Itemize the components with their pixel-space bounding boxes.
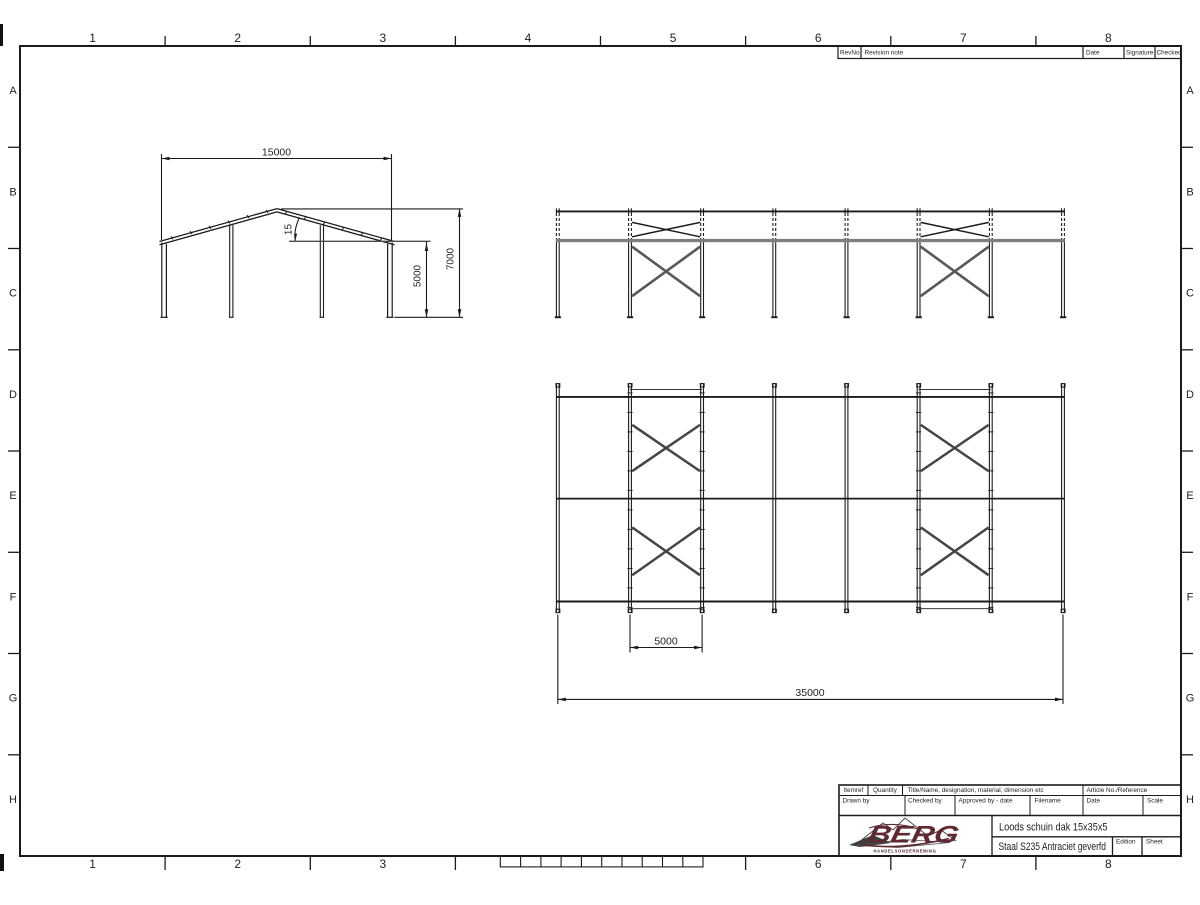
svg-text:Date: Date [1086, 50, 1100, 57]
svg-text:Scale: Scale [1147, 798, 1163, 805]
svg-text:A: A [1186, 85, 1194, 97]
svg-text:Quantity: Quantity [873, 787, 898, 794]
svg-text:Signature: Signature [1126, 50, 1154, 57]
svg-text:8: 8 [1105, 857, 1112, 871]
svg-text:Filename: Filename [1035, 798, 1062, 805]
svg-text:Drawn by: Drawn by [843, 798, 871, 805]
svg-text:D: D [9, 389, 17, 401]
svg-text:RevNo: RevNo [840, 50, 860, 57]
svg-text:2: 2 [234, 857, 241, 871]
svg-text:7000: 7000 [445, 247, 456, 270]
svg-text:Edition: Edition [1116, 839, 1136, 846]
svg-text:Revision note: Revision note [865, 50, 904, 57]
svg-text:Checked by: Checked by [908, 798, 943, 805]
svg-text:F: F [1187, 591, 1194, 603]
svg-text:Loods schuin dak 15x35x5: Loods schuin dak 15x35x5 [999, 822, 1108, 834]
svg-text:5: 5 [670, 31, 677, 45]
svg-text:3: 3 [379, 857, 386, 871]
svg-text:Itemref: Itemref [844, 787, 864, 794]
svg-text:7: 7 [960, 31, 967, 45]
svg-text:G: G [1186, 693, 1195, 705]
svg-text:C: C [1186, 288, 1194, 300]
svg-text:6: 6 [815, 31, 822, 45]
svg-text:7: 7 [960, 857, 967, 871]
svg-text:H: H [9, 794, 17, 806]
svg-text:15000: 15000 [262, 147, 291, 159]
svg-text:Sheet: Sheet [1146, 839, 1163, 846]
svg-text:Checked: Checked [1157, 50, 1183, 57]
svg-text:C: C [9, 288, 17, 300]
svg-text:H: H [1186, 794, 1194, 806]
svg-text:8: 8 [1105, 31, 1112, 45]
svg-text:B: B [1186, 186, 1193, 198]
svg-text:4: 4 [525, 31, 532, 45]
svg-text:Date: Date [1087, 798, 1101, 805]
svg-text:D: D [1186, 389, 1194, 401]
svg-text:1: 1 [89, 31, 96, 45]
svg-text:5000: 5000 [654, 636, 678, 648]
svg-text:Title/Name, designation, mater: Title/Name, designation, material, dimen… [908, 787, 1045, 794]
svg-text:HANDELSONDERNEMING: HANDELSONDERNEMING [874, 849, 937, 854]
svg-text:G: G [9, 693, 18, 705]
svg-text:Staal S235 Antraciet geverfd: Staal S235 Antraciet geverfd [999, 841, 1107, 853]
svg-text:E: E [9, 490, 16, 502]
svg-text:F: F [10, 591, 17, 603]
svg-text:2: 2 [234, 31, 241, 45]
svg-text:3: 3 [379, 31, 386, 45]
svg-text:15: 15 [284, 224, 295, 236]
svg-text:6: 6 [815, 857, 822, 871]
svg-text:1: 1 [89, 857, 96, 871]
svg-text:Article No./Reference: Article No./Reference [1087, 787, 1148, 794]
svg-text:A: A [9, 85, 17, 97]
svg-text:E: E [1186, 490, 1193, 502]
svg-text:35000: 35000 [795, 687, 824, 699]
svg-text:5000: 5000 [412, 264, 423, 287]
svg-text:B: B [9, 186, 16, 198]
svg-text:Approved by - date: Approved by - date [959, 798, 1013, 805]
